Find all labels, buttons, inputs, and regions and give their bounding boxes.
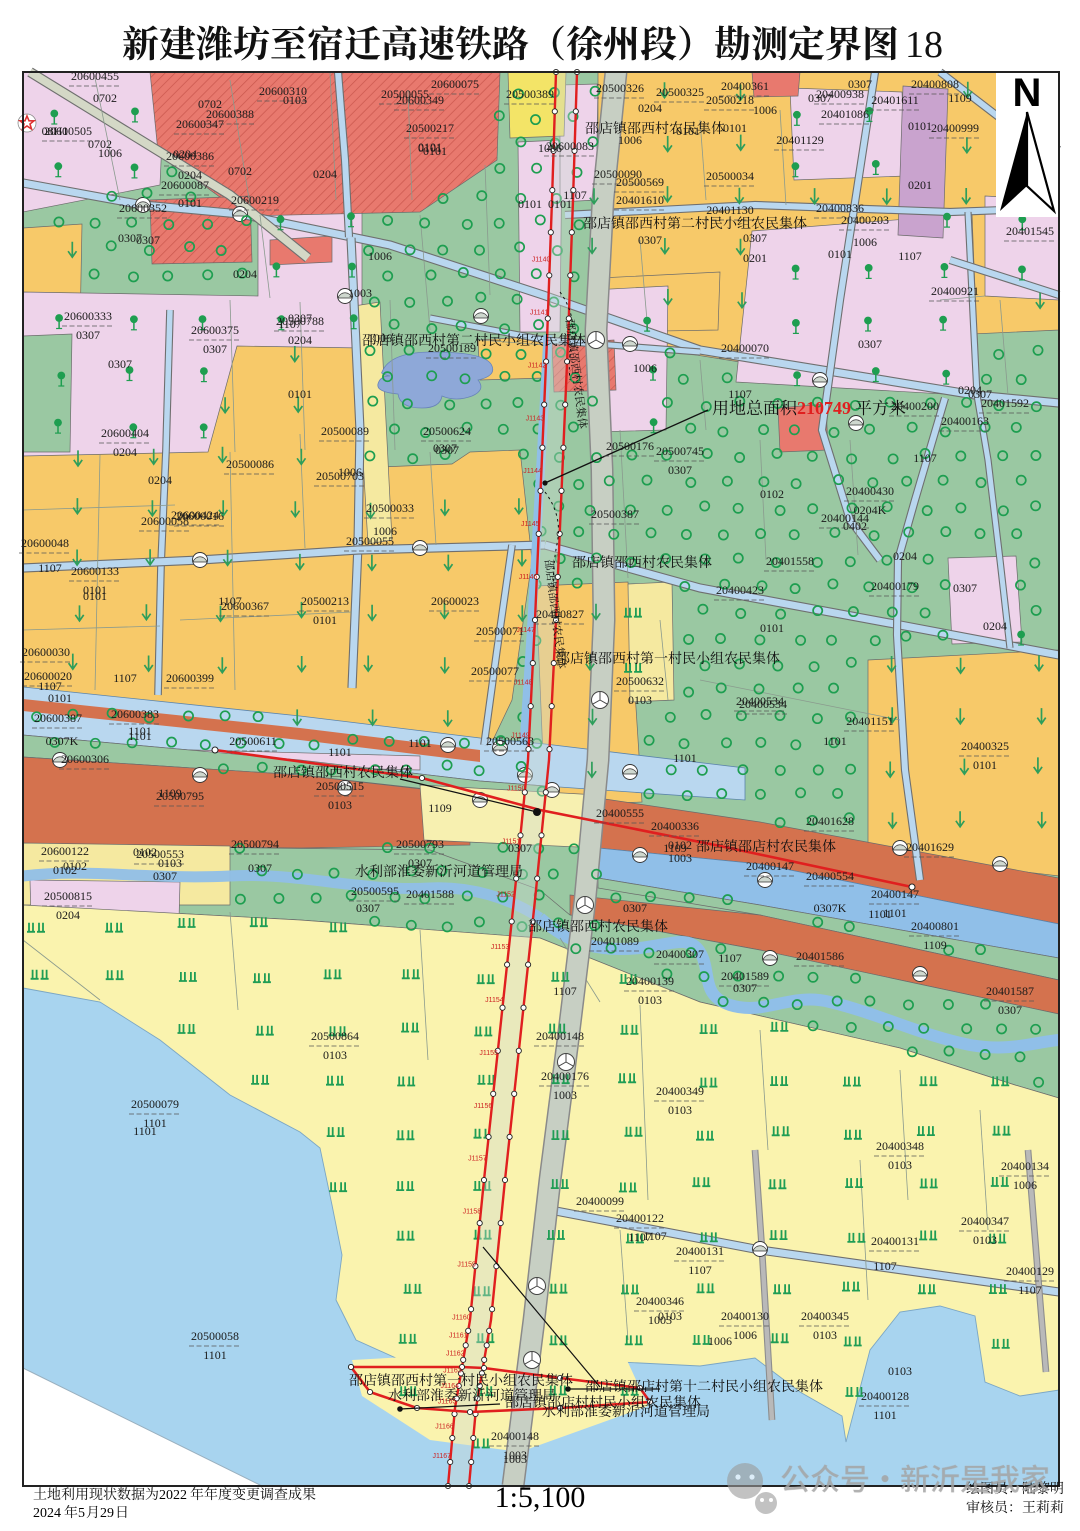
svg-text:0103: 0103 xyxy=(658,1309,682,1323)
svg-text:1006: 1006 xyxy=(618,133,642,147)
svg-text:1006: 1006 xyxy=(853,235,877,249)
svg-text:1101: 1101 xyxy=(203,1348,227,1362)
svg-text:20400134: 20400134 xyxy=(1001,1159,1049,1173)
svg-text:20400139: 20400139 xyxy=(626,974,674,988)
svg-text:0204: 0204 xyxy=(893,549,917,563)
svg-text:1:5,100: 1:5,100 xyxy=(495,1481,586,1514)
svg-text:0307: 0307 xyxy=(433,441,457,455)
svg-text:0307: 0307 xyxy=(848,77,872,91)
svg-text:20401129: 20401129 xyxy=(776,133,824,147)
svg-text:20400534: 20400534 xyxy=(739,697,787,711)
svg-text:0204: 0204 xyxy=(313,167,337,181)
svg-text:0702: 0702 xyxy=(93,91,117,105)
svg-text:0204: 0204 xyxy=(56,908,80,922)
svg-text:J1162: J1162 xyxy=(446,1350,465,1357)
svg-text:0204: 0204 xyxy=(233,267,257,281)
svg-text:J1158: J1158 xyxy=(463,1209,482,1216)
svg-text:1006: 1006 xyxy=(368,249,392,263)
svg-text:20500326: 20500326 xyxy=(596,81,644,95)
svg-text:1101: 1101 xyxy=(673,751,697,765)
svg-text:20400200: 20400200 xyxy=(891,399,939,413)
svg-text:J1159: J1159 xyxy=(457,1262,476,1269)
svg-text:20500034: 20500034 xyxy=(706,169,754,183)
svg-text:1101: 1101 xyxy=(873,1408,897,1422)
svg-text:0204: 0204 xyxy=(148,473,172,487)
svg-text:20400423: 20400423 xyxy=(716,583,764,597)
svg-text:20401610: 20401610 xyxy=(616,193,664,207)
svg-text:0101: 0101 xyxy=(548,197,572,211)
svg-text:0103: 0103 xyxy=(323,1048,347,1062)
svg-text:0307: 0307 xyxy=(153,869,177,883)
svg-text:0307: 0307 xyxy=(248,861,272,875)
svg-text:J1151: J1151 xyxy=(502,838,521,845)
svg-text:2024: 2024 xyxy=(33,1506,61,1521)
svg-text:1107: 1107 xyxy=(1018,1283,1042,1297)
svg-text:0101: 0101 xyxy=(760,621,784,635)
svg-text:20400361: 20400361 xyxy=(721,79,769,93)
svg-text:1107: 1107 xyxy=(643,1229,667,1243)
svg-text:1107: 1107 xyxy=(898,249,922,263)
svg-text:0103: 0103 xyxy=(328,798,352,812)
svg-text:20500058: 20500058 xyxy=(191,1329,239,1343)
svg-text:20500077: 20500077 xyxy=(471,664,519,678)
svg-text:0307: 0307 xyxy=(668,463,692,477)
svg-text:1006: 1006 xyxy=(733,1328,757,1342)
svg-text:20600023: 20600023 xyxy=(431,594,479,608)
svg-text:20600404: 20600404 xyxy=(101,426,149,440)
svg-text:1107: 1107 xyxy=(113,671,137,685)
svg-text:J1156: J1156 xyxy=(474,1103,493,1110)
svg-text:20400128: 20400128 xyxy=(861,1389,909,1403)
svg-text:0307: 0307 xyxy=(638,233,662,247)
svg-text:20401151: 20401151 xyxy=(846,714,894,728)
svg-text:J1142: J1142 xyxy=(528,362,547,369)
svg-text:0204: 0204 xyxy=(638,101,662,115)
svg-text:1006: 1006 xyxy=(708,1334,732,1348)
svg-text:0307: 0307 xyxy=(108,357,132,371)
svg-text:0204: 0204 xyxy=(288,333,312,347)
svg-text:0307: 0307 xyxy=(953,581,977,595)
svg-text:20400122: 20400122 xyxy=(616,1211,664,1225)
svg-text:0307: 0307 xyxy=(733,981,757,995)
svg-text:20500595: 20500595 xyxy=(351,884,399,898)
svg-text:1006: 1006 xyxy=(538,141,562,155)
svg-text:20500864: 20500864 xyxy=(311,1029,359,1043)
svg-text:20600087: 20600087 xyxy=(161,178,209,192)
svg-text:1109: 1109 xyxy=(158,786,182,800)
svg-text:2022: 2022 xyxy=(159,1488,187,1503)
svg-text:20600219: 20600219 xyxy=(231,193,279,207)
svg-text:J1150: J1150 xyxy=(507,786,526,793)
svg-text:20500515: 20500515 xyxy=(316,779,364,793)
svg-text:20400349: 20400349 xyxy=(656,1084,704,1098)
svg-text:0103: 0103 xyxy=(813,1328,837,1342)
svg-text:J1149: J1149 xyxy=(511,733,530,740)
svg-text:20400307: 20400307 xyxy=(656,947,704,961)
svg-text:0402: 0402 xyxy=(843,519,867,533)
svg-text:J1147: J1147 xyxy=(516,627,535,634)
svg-text:J1161: J1161 xyxy=(449,1333,468,1340)
svg-text:20400203: 20400203 xyxy=(841,213,889,227)
svg-text:20500815: 20500815 xyxy=(44,889,92,903)
svg-text:20400099: 20400099 xyxy=(576,1194,624,1208)
svg-text:20600352: 20600352 xyxy=(119,201,167,215)
svg-text:1109: 1109 xyxy=(923,938,947,952)
svg-text:1003: 1003 xyxy=(503,1452,527,1466)
svg-text:20400808: 20400808 xyxy=(911,77,959,91)
svg-text:210749: 210749 xyxy=(797,398,851,418)
svg-text:1109: 1109 xyxy=(948,91,972,105)
svg-text:20500218: 20500218 xyxy=(706,93,754,107)
svg-text:20401130: 20401130 xyxy=(706,203,754,217)
svg-text:0307: 0307 xyxy=(356,901,380,915)
svg-text:1101: 1101 xyxy=(823,734,847,748)
svg-text:20500624: 20500624 xyxy=(423,424,471,438)
svg-text:20500086: 20500086 xyxy=(226,457,274,471)
svg-text:0307: 0307 xyxy=(136,233,160,247)
svg-text:20400130: 20400130 xyxy=(721,1309,769,1323)
svg-text:J1167: J1167 xyxy=(433,1453,452,1460)
svg-text:J1144: J1144 xyxy=(523,468,542,475)
svg-text:1107: 1107 xyxy=(718,951,742,965)
svg-text:0101: 0101 xyxy=(828,247,852,261)
svg-text:1101: 1101 xyxy=(328,745,352,759)
svg-text:0101: 0101 xyxy=(288,387,312,401)
svg-text:0103: 0103 xyxy=(638,993,662,1007)
svg-text:20600133: 20600133 xyxy=(71,564,119,578)
svg-text:0103: 0103 xyxy=(158,856,182,870)
svg-text:20600016: 20600016 xyxy=(176,509,224,523)
svg-text:20400129: 20400129 xyxy=(1006,1264,1054,1278)
svg-text:1006: 1006 xyxy=(633,361,657,375)
svg-text:1006: 1006 xyxy=(373,524,397,538)
svg-text:20401628: 20401628 xyxy=(806,814,854,828)
svg-text:0101: 0101 xyxy=(908,119,932,133)
svg-text:20500176: 20500176 xyxy=(606,439,654,453)
svg-text:J1163: J1163 xyxy=(443,1367,462,1374)
svg-text:20600383: 20600383 xyxy=(111,707,159,721)
svg-text:20400345: 20400345 xyxy=(801,1309,849,1323)
svg-text:1107: 1107 xyxy=(218,594,242,608)
svg-text:1101: 1101 xyxy=(408,736,432,750)
svg-text:20400131: 20400131 xyxy=(871,1234,919,1248)
svg-text:J1148: J1148 xyxy=(514,680,533,687)
svg-text:1107: 1107 xyxy=(913,451,937,465)
svg-text:0702: 0702 xyxy=(198,97,222,111)
svg-text:29: 29 xyxy=(100,1506,114,1521)
svg-text:0307: 0307 xyxy=(743,231,767,245)
svg-text:20500213: 20500213 xyxy=(301,594,349,608)
svg-text:20500632: 20500632 xyxy=(616,674,664,688)
svg-text:0307: 0307 xyxy=(408,856,432,870)
svg-text:N: N xyxy=(1013,71,1042,115)
svg-text:20600347: 20600347 xyxy=(176,117,224,131)
svg-text:20401586: 20401586 xyxy=(796,949,844,963)
svg-text:20500794: 20500794 xyxy=(231,837,279,851)
svg-text:0204: 0204 xyxy=(113,445,137,459)
svg-text:0103: 0103 xyxy=(668,1103,692,1117)
svg-text:20500611: 20500611 xyxy=(229,734,277,748)
svg-text:20400131: 20400131 xyxy=(676,1244,724,1258)
svg-text:20400148: 20400148 xyxy=(536,1029,584,1043)
svg-text:20400346: 20400346 xyxy=(636,1294,684,1308)
svg-text:J1146: J1146 xyxy=(519,574,538,581)
svg-text:20400147: 20400147 xyxy=(871,887,919,901)
svg-text:J1166: J1166 xyxy=(435,1424,454,1431)
svg-text:0201: 0201 xyxy=(743,251,767,265)
svg-text:5: 5 xyxy=(78,1506,85,1521)
svg-text:1101: 1101 xyxy=(133,1124,157,1138)
svg-text:0103: 0103 xyxy=(283,93,307,107)
svg-text:20400347: 20400347 xyxy=(961,1214,1009,1228)
svg-text:20600030: 20600030 xyxy=(22,645,70,659)
svg-text:J1145: J1145 xyxy=(521,521,540,528)
svg-text:20500389: 20500389 xyxy=(506,87,554,101)
svg-text:1107: 1107 xyxy=(873,1259,897,1273)
svg-text:20500033: 20500033 xyxy=(366,501,414,515)
svg-text:20500745: 20500745 xyxy=(656,444,704,458)
svg-text:1006: 1006 xyxy=(1013,1178,1037,1192)
svg-text:0103: 0103 xyxy=(888,1158,912,1172)
svg-text:20400555: 20400555 xyxy=(596,806,644,820)
svg-text:18: 18 xyxy=(905,24,943,66)
svg-text:0307: 0307 xyxy=(808,91,832,105)
svg-text:20401629: 20401629 xyxy=(906,840,954,854)
svg-text:20500055: 20500055 xyxy=(381,87,429,101)
svg-text:0101: 0101 xyxy=(723,121,747,135)
svg-text:0102: 0102 xyxy=(63,859,87,873)
svg-text:20400921: 20400921 xyxy=(931,284,979,298)
svg-text:J1141: J1141 xyxy=(530,310,549,317)
svg-text:0102: 0102 xyxy=(760,487,784,501)
svg-text:20400163: 20400163 xyxy=(941,414,989,428)
svg-text:1107: 1107 xyxy=(38,679,62,693)
svg-text:J1143: J1143 xyxy=(526,415,545,422)
svg-text:20401086: 20401086 xyxy=(821,107,869,121)
svg-text:1101: 1101 xyxy=(128,724,152,738)
svg-text:20500217: 20500217 xyxy=(406,121,454,135)
svg-text:1006: 1006 xyxy=(338,465,362,479)
svg-text:20400999: 20400999 xyxy=(931,121,979,135)
svg-text:0307: 0307 xyxy=(968,387,992,401)
svg-text:J1140: J1140 xyxy=(532,257,551,264)
svg-text:20600048: 20600048 xyxy=(21,536,69,550)
svg-text:0103: 0103 xyxy=(973,1233,997,1247)
svg-text:1107: 1107 xyxy=(728,387,752,401)
svg-text:20600122: 20600122 xyxy=(41,844,89,858)
svg-text:20400147: 20400147 xyxy=(746,859,794,873)
svg-text:J1157: J1157 xyxy=(468,1156,487,1163)
svg-text:20400070: 20400070 xyxy=(721,341,769,355)
svg-text:0101: 0101 xyxy=(313,613,337,627)
svg-text:20401089: 20401089 xyxy=(591,934,639,948)
svg-text:20400179: 20400179 xyxy=(871,579,919,593)
svg-text:20400554: 20400554 xyxy=(806,869,854,883)
svg-text:0101: 0101 xyxy=(973,758,997,772)
svg-text:20400325: 20400325 xyxy=(961,739,1009,753)
svg-text:20600387: 20600387 xyxy=(34,711,82,725)
svg-text:0101: 0101 xyxy=(48,691,72,705)
svg-text:20400827: 20400827 xyxy=(536,607,584,621)
svg-text:J1164: J1164 xyxy=(441,1383,460,1390)
svg-text:J1154: J1154 xyxy=(485,997,504,1004)
svg-text:0101: 0101 xyxy=(178,196,202,210)
svg-text:0307: 0307 xyxy=(998,1003,1022,1017)
svg-text:20500387: 20500387 xyxy=(591,507,639,521)
svg-text:0103: 0103 xyxy=(628,693,652,707)
svg-text:0307: 0307 xyxy=(858,337,882,351)
svg-text:0307: 0307 xyxy=(76,328,100,342)
svg-text:J1165: J1165 xyxy=(438,1398,457,1405)
svg-text:J1152: J1152 xyxy=(496,891,515,898)
svg-text:20600306: 20600306 xyxy=(61,752,109,766)
svg-text:1003: 1003 xyxy=(553,1088,577,1102)
svg-text:20500325: 20500325 xyxy=(656,85,704,99)
svg-text:0102: 0102 xyxy=(668,838,692,852)
svg-text:20600333: 20600333 xyxy=(64,309,112,323)
svg-text:0101: 0101 xyxy=(418,141,442,155)
svg-text:0307: 0307 xyxy=(203,342,227,356)
svg-text:20401545: 20401545 xyxy=(1006,224,1054,238)
svg-text:08H1: 08H1 xyxy=(42,124,69,138)
svg-text:20401558: 20401558 xyxy=(766,554,814,568)
svg-text:20500793: 20500793 xyxy=(396,837,444,851)
svg-text:1003: 1003 xyxy=(668,851,692,865)
svg-text:1006: 1006 xyxy=(753,103,777,117)
svg-text:20400430: 20400430 xyxy=(846,484,894,498)
svg-text:0307K: 0307K xyxy=(46,734,79,748)
svg-text:1107: 1107 xyxy=(553,984,577,998)
svg-text:20600399: 20600399 xyxy=(166,671,214,685)
svg-text:1101: 1101 xyxy=(868,907,892,921)
svg-text:0101: 0101 xyxy=(518,197,542,211)
svg-text:20500089: 20500089 xyxy=(321,424,369,438)
svg-text:20500079: 20500079 xyxy=(131,1097,179,1111)
svg-text:20401587: 20401587 xyxy=(986,984,1034,998)
svg-text:0101: 0101 xyxy=(676,124,700,138)
svg-text:20500090: 20500090 xyxy=(594,167,642,181)
svg-text:20400336: 20400336 xyxy=(651,819,699,833)
svg-text:0102: 0102 xyxy=(133,845,157,859)
svg-text:20400176: 20400176 xyxy=(541,1069,589,1083)
svg-text:1107: 1107 xyxy=(38,561,62,575)
svg-text:0702: 0702 xyxy=(228,164,252,178)
svg-text:20600375: 20600375 xyxy=(191,323,239,337)
svg-text:J1155: J1155 xyxy=(479,1050,498,1057)
svg-text:20400348: 20400348 xyxy=(876,1139,924,1153)
svg-text:0204: 0204 xyxy=(173,147,197,161)
svg-text:1107: 1107 xyxy=(688,1263,712,1277)
svg-text:0103: 0103 xyxy=(888,1364,912,1378)
svg-text:0307: 0307 xyxy=(623,901,647,915)
svg-text:1109: 1109 xyxy=(428,801,452,815)
svg-text:1107: 1107 xyxy=(278,317,302,331)
svg-text:0204: 0204 xyxy=(983,619,1007,633)
svg-text:0201: 0201 xyxy=(908,178,932,192)
svg-text:20401588: 20401588 xyxy=(406,887,454,901)
svg-text:20400148: 20400148 xyxy=(491,1429,539,1443)
svg-text:20600075: 20600075 xyxy=(431,77,479,91)
svg-text:0307K: 0307K xyxy=(814,901,847,915)
svg-text:1003: 1003 xyxy=(348,286,372,300)
svg-text:J1153: J1153 xyxy=(491,944,510,951)
svg-text:J1160: J1160 xyxy=(452,1314,471,1321)
svg-text:20401611: 20401611 xyxy=(871,93,919,107)
svg-text:1006: 1006 xyxy=(98,146,122,160)
svg-text:20400801: 20400801 xyxy=(911,919,959,933)
svg-text:0101: 0101 xyxy=(83,589,107,603)
